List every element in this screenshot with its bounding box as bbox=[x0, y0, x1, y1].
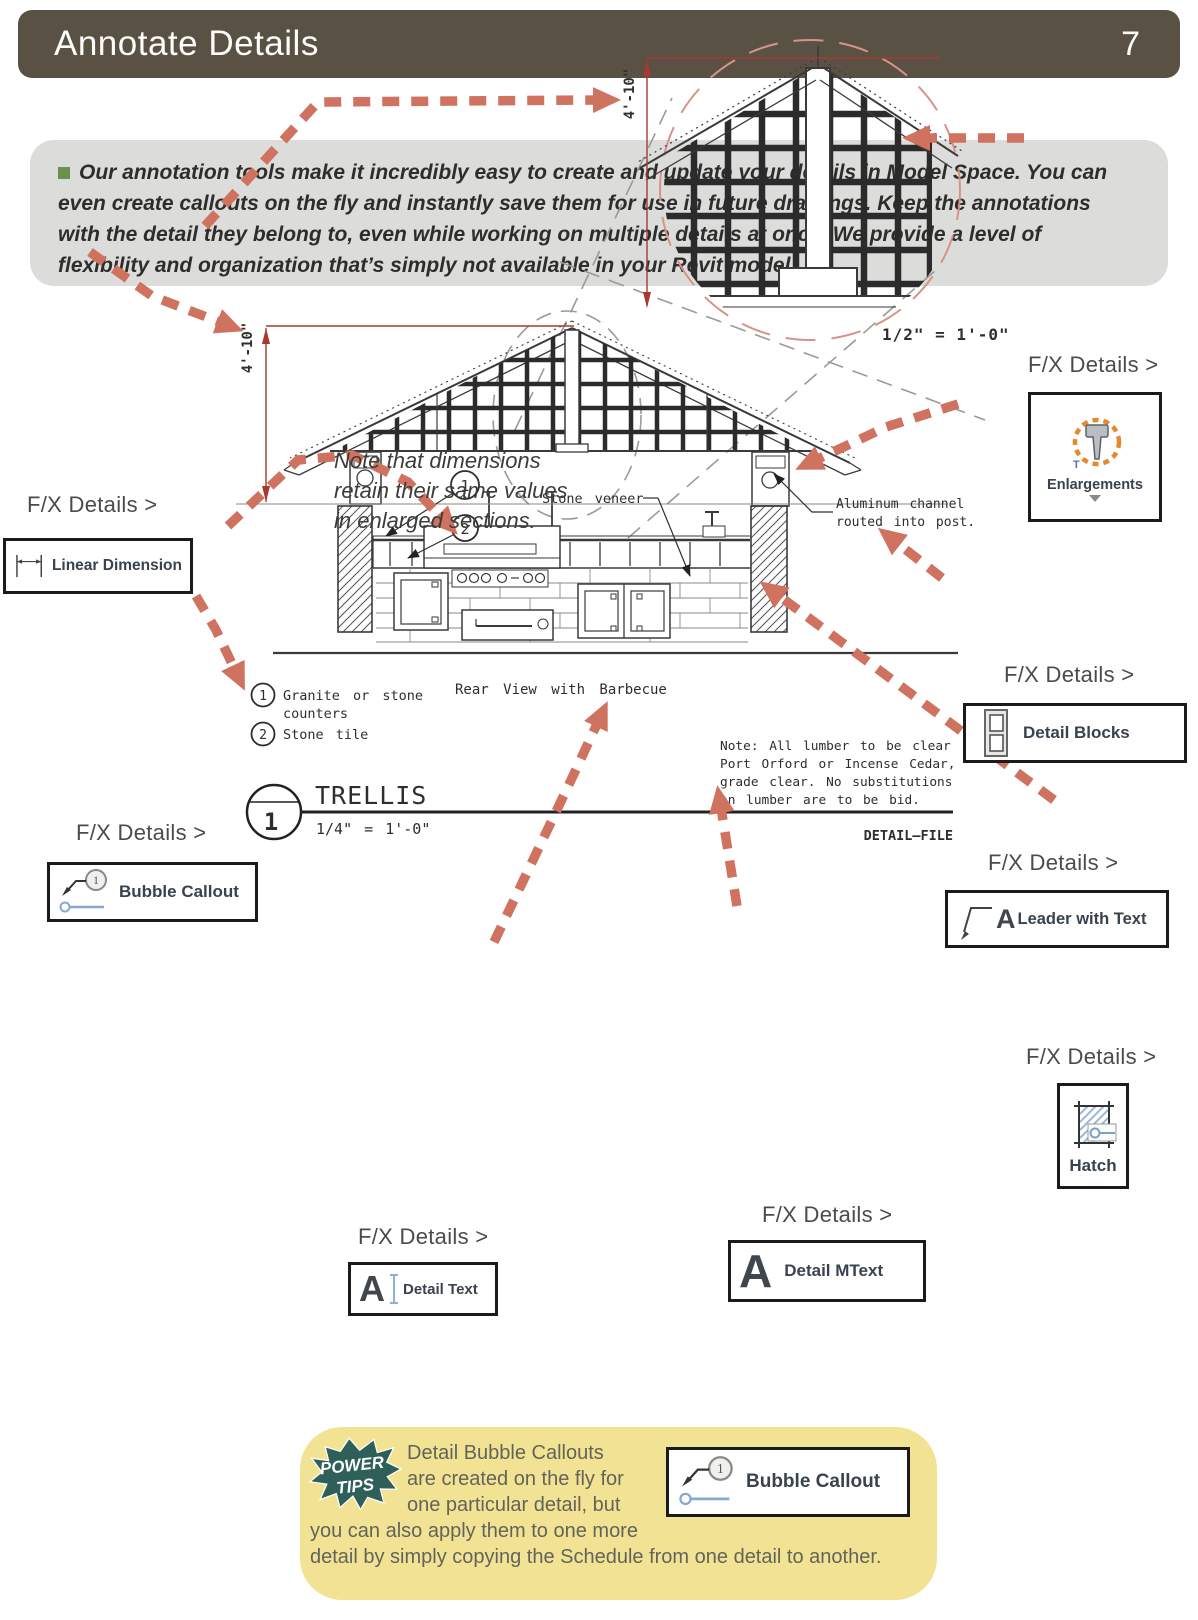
leader-with-text-icon bbox=[956, 896, 994, 942]
dropdown-caret-icon[interactable] bbox=[1089, 495, 1101, 502]
dimension-note: Note that dimensions retain their same v… bbox=[334, 446, 568, 536]
enlargements-label: Enlargements bbox=[1047, 477, 1143, 493]
leader-with-text-button[interactable]: A Leader with Text bbox=[945, 890, 1169, 948]
legend-2-text: Stone tile bbox=[283, 727, 368, 743]
fx-details-label-detail-text: F/X Details > bbox=[358, 1224, 488, 1250]
detail-title: TRELLIS bbox=[315, 781, 427, 810]
enlarged-dim-text: 4'-10" bbox=[622, 69, 638, 120]
svg-text:1: 1 bbox=[717, 1461, 724, 1476]
dimension-note-line1: Note that dimensions bbox=[334, 446, 568, 476]
lumber-note-2: Port Orford or Incense Cedar, bbox=[720, 757, 955, 772]
power-tips-line: detail by simply copying the Schedule fr… bbox=[310, 1544, 923, 1570]
detail-number: 1 bbox=[264, 808, 278, 836]
fx-details-label-leader-with-text: F/X Details > bbox=[988, 850, 1118, 876]
leader-a-glyph: A bbox=[996, 906, 1016, 933]
bubble-callout-label: Bubble Callout bbox=[119, 882, 239, 902]
detail-mtext-label: Detail MText bbox=[784, 1261, 883, 1281]
svg-text:1: 1 bbox=[93, 873, 99, 887]
legend-2-num: 2 bbox=[259, 728, 267, 743]
enlargements-icon: T bbox=[1064, 413, 1126, 475]
legend-1-text-2: counters bbox=[283, 706, 348, 722]
lumber-note-3: grade clear. No substitutions bbox=[720, 775, 952, 790]
lumber-note-1: Note: All lumber to be clear bbox=[720, 739, 951, 754]
detail-text-a-glyph: A bbox=[359, 1271, 385, 1307]
detail-text-button[interactable]: A Detail Text bbox=[348, 1262, 498, 1316]
detail-blocks-icon bbox=[982, 708, 1010, 758]
detail-file-label: DETAIL—FILE bbox=[864, 828, 953, 844]
power-tips-line: you can also apply them to one more bbox=[310, 1518, 923, 1544]
detail-text-label: Detail Text bbox=[403, 1281, 478, 1298]
detail-mtext-a-glyph: A bbox=[739, 1248, 772, 1294]
detail-scale: 1/4" = 1'-0" bbox=[316, 820, 430, 838]
hatch-button[interactable]: Hatch bbox=[1057, 1083, 1129, 1189]
aluminum-label-2: routed into post. bbox=[836, 515, 975, 530]
main-dim-text: 4'-10" bbox=[240, 323, 256, 374]
fx-details-label-hatch: F/X Details > bbox=[1026, 1044, 1156, 1070]
bubble-callout-label: Bubble Callout bbox=[746, 1471, 880, 1493]
enlarged-scale-text: 1/2" = 1'-0" bbox=[882, 325, 1010, 344]
rear-view-caption: Rear View with Barbecue bbox=[455, 682, 667, 698]
fx-details-label-enlargements: F/X Details > bbox=[1028, 352, 1158, 378]
legend-1-num: 1 bbox=[259, 689, 267, 704]
fx-details-label-bubble-callout: F/X Details > bbox=[76, 820, 206, 846]
detail-mtext-button[interactable]: A Detail MText bbox=[728, 1240, 926, 1302]
text-cursor-icon bbox=[388, 1272, 400, 1306]
svg-text:T: T bbox=[1073, 459, 1080, 471]
power-tips-badge-icon: POWER TIPS bbox=[303, 1435, 403, 1515]
fx-details-label-detail-blocks: F/X Details > bbox=[1004, 662, 1134, 688]
linear-dimension-icon bbox=[14, 547, 45, 585]
dimension-note-line3: in enlarged sections. bbox=[334, 506, 568, 536]
legend-1-text: Granite or stone bbox=[283, 688, 423, 704]
detail-blocks-label: Detail Blocks bbox=[1023, 723, 1130, 743]
hatch-label: Hatch bbox=[1069, 1156, 1116, 1176]
linear-dimension-label: Linear Dimension bbox=[52, 557, 182, 575]
enlargements-button[interactable]: T Enlargements bbox=[1028, 392, 1162, 522]
power-tips-badge-word2: TIPS bbox=[335, 1475, 375, 1498]
fx-details-label-linear-dimension: F/X Details > bbox=[27, 492, 157, 518]
bubble-callout-button[interactable]: 1 Bubble Callout bbox=[47, 862, 258, 922]
bubble-callout-icon: 1 bbox=[677, 1455, 739, 1509]
aluminum-label-1: Aluminum channel bbox=[836, 497, 964, 512]
leader-with-text-label: Leader with Text bbox=[1018, 910, 1147, 929]
lumber-note-4: on lumber are to be bid. bbox=[720, 793, 920, 808]
detail-blocks-button[interactable]: Detail Blocks bbox=[963, 703, 1187, 763]
bubble-callout-icon: 1 bbox=[58, 868, 112, 916]
document-page: Annotate Details 7 Our annotation tools … bbox=[0, 0, 1198, 1620]
hatch-icon bbox=[1068, 1096, 1118, 1154]
fx-details-label-detail-mtext: F/X Details > bbox=[762, 1202, 892, 1228]
enlarged-detail bbox=[638, 46, 962, 307]
linear-dimension-button[interactable]: Linear Dimension bbox=[3, 538, 193, 594]
lumber-note: Note: All lumber to be clear Port Orford… bbox=[720, 739, 955, 808]
dimension-note-line2: retain their same values bbox=[334, 476, 568, 506]
bubble-callout-button-tip[interactable]: 1 Bubble Callout bbox=[666, 1447, 910, 1517]
